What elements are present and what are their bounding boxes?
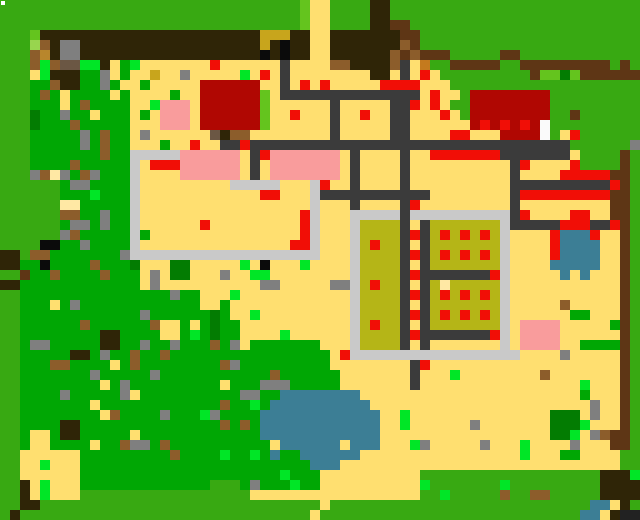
map-tile <box>260 40 270 50</box>
map-tile <box>440 40 450 50</box>
map-tile <box>60 220 70 230</box>
map-tile <box>310 430 320 440</box>
map-tile <box>510 220 520 230</box>
map-tile <box>270 450 280 460</box>
map-tile <box>400 170 410 180</box>
map-tile <box>120 140 130 150</box>
map-tile <box>590 440 600 450</box>
map-tile <box>480 100 490 110</box>
map-tile <box>330 140 340 150</box>
map-tile <box>480 270 490 280</box>
map-tile <box>330 300 340 310</box>
map-tile <box>550 380 560 390</box>
map-tile <box>380 110 390 120</box>
map-tile <box>500 210 510 220</box>
map-tile <box>490 90 500 100</box>
map-tile <box>210 340 220 350</box>
map-tile <box>250 490 260 500</box>
map-tile <box>370 270 380 280</box>
map-tile <box>370 250 380 260</box>
map-tile <box>270 120 280 130</box>
map-tile <box>560 510 570 520</box>
map-tile <box>290 290 300 300</box>
map-tile <box>300 480 310 490</box>
map-tile <box>240 230 250 240</box>
map-tile <box>20 100 30 110</box>
map-tile <box>410 390 420 400</box>
map-tile <box>160 340 170 350</box>
map-tile <box>290 0 300 10</box>
map-tile <box>410 200 420 210</box>
map-tile <box>300 320 310 330</box>
map-tile <box>620 470 630 480</box>
map-tile <box>410 90 420 100</box>
map-tile <box>320 240 330 250</box>
map-tile <box>500 440 510 450</box>
map-tile <box>150 20 160 30</box>
map-tile <box>440 100 450 110</box>
map-tile <box>520 40 530 50</box>
map-tile <box>280 410 290 420</box>
map-tile <box>330 110 340 120</box>
map-tile <box>360 480 370 490</box>
map-tile <box>350 500 360 510</box>
map-tile <box>500 40 510 50</box>
map-tile <box>0 170 10 180</box>
map-tile <box>330 190 340 200</box>
map-tile <box>420 470 430 480</box>
map-tile <box>30 110 40 120</box>
map-tile <box>50 240 60 250</box>
map-tile <box>400 200 410 210</box>
map-tile <box>480 140 490 150</box>
map-tile <box>480 310 490 320</box>
map-tile <box>70 280 80 290</box>
map-tile <box>520 50 530 60</box>
map-tile <box>410 100 420 110</box>
map-tile <box>30 260 40 270</box>
map-tile <box>260 250 270 260</box>
map-tile <box>480 300 490 310</box>
map-tile <box>100 280 110 290</box>
map-tile <box>80 120 90 130</box>
map-tile <box>130 260 140 270</box>
map-tile <box>430 20 440 30</box>
map-tile <box>600 480 610 490</box>
map-tile <box>630 190 640 200</box>
map-tile <box>120 30 130 40</box>
map-tile <box>290 170 300 180</box>
map-tile <box>310 230 320 240</box>
map-tile <box>80 410 90 420</box>
map-tile <box>110 490 120 500</box>
map-tile <box>40 200 50 210</box>
map-tile <box>360 160 370 170</box>
map-tile <box>150 310 160 320</box>
map-tile <box>540 330 550 340</box>
map-tile <box>130 60 140 70</box>
map-tile <box>470 270 480 280</box>
map-tile <box>140 160 150 170</box>
map-tile <box>320 350 330 360</box>
map-tile <box>240 160 250 170</box>
map-tile <box>120 350 130 360</box>
map-tile <box>410 210 420 220</box>
map-tile <box>170 240 180 250</box>
map-tile <box>630 30 640 40</box>
map-tile <box>190 500 200 510</box>
map-tile <box>600 460 610 470</box>
map-tile <box>130 340 140 350</box>
map-tile <box>20 90 30 100</box>
map-tile <box>420 280 430 290</box>
map-tile <box>300 330 310 340</box>
map-tile <box>170 330 180 340</box>
map-tile <box>10 350 20 360</box>
map-tile <box>360 80 370 90</box>
map-tile <box>0 280 10 290</box>
map-tile <box>420 350 430 360</box>
map-tile <box>410 430 420 440</box>
map-tile <box>490 140 500 150</box>
map-tile <box>480 510 490 520</box>
map-tile <box>410 480 420 490</box>
map-tile <box>330 390 340 400</box>
map-tile <box>590 70 600 80</box>
map-tile <box>320 270 330 280</box>
map-tile <box>520 90 530 100</box>
map-tile <box>50 270 60 280</box>
map-tile <box>590 320 600 330</box>
map-tile <box>420 270 430 280</box>
map-tile <box>390 160 400 170</box>
map-tile <box>590 510 600 520</box>
map-tile <box>570 500 580 510</box>
map-tile <box>210 210 220 220</box>
map-tile <box>330 440 340 450</box>
map-tile <box>410 10 420 20</box>
map-tile <box>500 410 510 420</box>
map-tile <box>20 130 30 140</box>
map-tile <box>630 470 640 480</box>
map-tile <box>350 420 360 430</box>
map-tile <box>530 450 540 460</box>
map-tile <box>490 420 500 430</box>
map-tile <box>460 340 470 350</box>
map-tile <box>400 20 410 30</box>
map-tile <box>260 440 270 450</box>
map-tile <box>430 400 440 410</box>
map-tile <box>240 70 250 80</box>
map-tile <box>410 270 420 280</box>
map-tile <box>210 410 220 420</box>
map-tile <box>110 110 120 120</box>
map-tile <box>160 240 170 250</box>
map-tile <box>150 270 160 280</box>
map-tile <box>320 320 330 330</box>
map-tile <box>10 160 20 170</box>
map-tile <box>260 130 270 140</box>
map-tile <box>300 60 310 70</box>
map-tile <box>230 150 240 160</box>
map-tile <box>520 450 530 460</box>
map-tile <box>80 320 90 330</box>
map-tile <box>250 60 260 70</box>
map-tile <box>590 370 600 380</box>
map-tile <box>40 210 50 220</box>
map-tile <box>130 510 140 520</box>
map-tile <box>450 160 460 170</box>
map-tile <box>380 480 390 490</box>
map-tile <box>400 210 410 220</box>
map-tile <box>460 30 470 40</box>
map-tile <box>280 60 290 70</box>
map-tile <box>150 110 160 120</box>
map-tile <box>270 420 280 430</box>
map-tile <box>260 220 270 230</box>
map-tile <box>0 330 10 340</box>
map-tile <box>320 100 330 110</box>
map-tile <box>110 470 120 480</box>
map-tile <box>220 0 230 10</box>
map-tile <box>450 400 460 410</box>
map-tile <box>130 390 140 400</box>
map-tile <box>560 340 570 350</box>
map-tile <box>480 500 490 510</box>
map-tile <box>0 270 10 280</box>
map-tile <box>160 210 170 220</box>
map-tile <box>360 400 370 410</box>
map-tile <box>440 400 450 410</box>
map-tile <box>560 120 570 130</box>
map-tile <box>610 20 620 30</box>
map-tile <box>460 430 470 440</box>
map-tile <box>500 70 510 80</box>
map-tile <box>120 420 130 430</box>
map-tile <box>270 300 280 310</box>
map-tile <box>600 240 610 250</box>
map-tile <box>160 160 170 170</box>
map-tile <box>340 310 350 320</box>
map-tile <box>530 500 540 510</box>
map-tile <box>320 360 330 370</box>
map-tile <box>170 230 180 240</box>
map-tile <box>190 290 200 300</box>
map-tile <box>530 90 540 100</box>
map-tile <box>590 350 600 360</box>
map-tile <box>20 430 30 440</box>
map-tile <box>520 260 530 270</box>
map-tile <box>230 410 240 420</box>
map-tile <box>400 330 410 340</box>
map-tile <box>360 380 370 390</box>
map-tile <box>560 490 570 500</box>
map-tile <box>300 140 310 150</box>
map-tile <box>150 0 160 10</box>
map-tile <box>370 370 380 380</box>
map-tile <box>270 160 280 170</box>
map-tile <box>610 420 620 430</box>
map-tile <box>560 230 570 240</box>
map-tile <box>510 420 520 430</box>
map-tile <box>220 420 230 430</box>
map-tile <box>360 60 370 70</box>
map-tile <box>430 180 440 190</box>
map-tile <box>420 230 430 240</box>
map-tile <box>80 430 90 440</box>
map-tile <box>450 140 460 150</box>
map-tile <box>30 130 40 140</box>
map-tile <box>180 290 190 300</box>
map-tile <box>330 430 340 440</box>
map-tile <box>250 140 260 150</box>
map-tile <box>70 350 80 360</box>
map-tile <box>600 400 610 410</box>
map-tile <box>220 60 230 70</box>
map-tile <box>280 350 290 360</box>
map-tile <box>50 10 60 20</box>
map-tile <box>350 310 360 320</box>
map-tile <box>0 480 10 490</box>
map-tile <box>550 10 560 20</box>
map-tile <box>560 470 570 480</box>
map-tile <box>580 470 590 480</box>
map-tile <box>470 110 480 120</box>
map-tile <box>120 210 130 220</box>
map-tile <box>500 300 510 310</box>
map-tile <box>420 400 430 410</box>
map-tile <box>10 50 20 60</box>
map-tile <box>130 320 140 330</box>
map-tile <box>50 90 60 100</box>
map-tile <box>90 130 100 140</box>
map-tile <box>500 170 510 180</box>
map-tile <box>620 20 630 30</box>
map-tile <box>260 510 270 520</box>
map-tile <box>220 470 230 480</box>
map-tile <box>320 450 330 460</box>
map-tile <box>230 390 240 400</box>
map-tile <box>380 140 390 150</box>
map-tile <box>630 160 640 170</box>
map-tile <box>150 160 160 170</box>
map-tile <box>240 340 250 350</box>
map-tile <box>490 230 500 240</box>
map-tile <box>380 450 390 460</box>
map-tile <box>540 240 550 250</box>
map-tile <box>110 40 120 50</box>
map-tile <box>100 420 110 430</box>
map-tile <box>30 370 40 380</box>
map-tile <box>210 320 220 330</box>
map-tile <box>320 380 330 390</box>
map-tile <box>260 70 270 80</box>
map-tile <box>380 200 390 210</box>
map-tile <box>60 100 70 110</box>
map-tile <box>170 190 180 200</box>
map-tile <box>310 0 320 10</box>
map-tile <box>380 500 390 510</box>
map-tile <box>30 250 40 260</box>
map-tile <box>200 280 210 290</box>
map-grid[interactable] <box>0 0 640 520</box>
map-tile <box>630 310 640 320</box>
map-tile <box>20 450 30 460</box>
map-tile <box>70 10 80 20</box>
map-tile <box>570 40 580 50</box>
map-tile <box>470 210 480 220</box>
map-tile <box>620 440 630 450</box>
map-tile <box>370 420 380 430</box>
map-tile <box>370 300 380 310</box>
map-tile <box>430 510 440 520</box>
map-tile <box>290 60 300 70</box>
map-tile <box>510 140 520 150</box>
map-tile <box>530 10 540 20</box>
map-tile <box>130 120 140 130</box>
map-tile <box>220 240 230 250</box>
map-tile <box>280 330 290 340</box>
map-tile <box>390 460 400 470</box>
map-tile <box>460 120 470 130</box>
map-tile <box>270 460 280 470</box>
map-tile <box>440 250 450 260</box>
map-tile <box>500 30 510 40</box>
map-tile <box>630 340 640 350</box>
map-tile <box>120 40 130 50</box>
map-tile <box>430 0 440 10</box>
map-tile <box>120 250 130 260</box>
map-tile <box>150 410 160 420</box>
map-tile <box>200 330 210 340</box>
map-tile <box>200 350 210 360</box>
map-tile <box>440 190 450 200</box>
map-tile <box>100 80 110 90</box>
map-tile <box>430 280 440 290</box>
map-tile <box>190 170 200 180</box>
map-tile <box>270 130 280 140</box>
map-tile <box>340 370 350 380</box>
map-tile <box>290 140 300 150</box>
map-tile <box>420 260 430 270</box>
map-tile <box>280 10 290 20</box>
map-tile <box>210 370 220 380</box>
map-tile <box>320 510 330 520</box>
map-tile <box>240 130 250 140</box>
map-tile <box>170 270 180 280</box>
map-tile <box>430 200 440 210</box>
map-tile <box>100 330 110 340</box>
map-tile <box>370 120 380 130</box>
map-tile <box>360 490 370 500</box>
map-tile <box>570 490 580 500</box>
map-tile <box>440 410 450 420</box>
map-tile <box>120 450 130 460</box>
map-tile <box>550 410 560 420</box>
map-tile <box>460 110 470 120</box>
map-tile <box>520 130 530 140</box>
map-tile <box>60 40 70 50</box>
map-tile <box>500 490 510 500</box>
map-tile <box>600 190 610 200</box>
map-tile <box>240 270 250 280</box>
map-tile <box>470 400 480 410</box>
map-tile <box>30 470 40 480</box>
map-tile <box>510 280 520 290</box>
map-tile <box>120 150 130 160</box>
map-tile <box>30 480 40 490</box>
map-tile <box>320 430 330 440</box>
